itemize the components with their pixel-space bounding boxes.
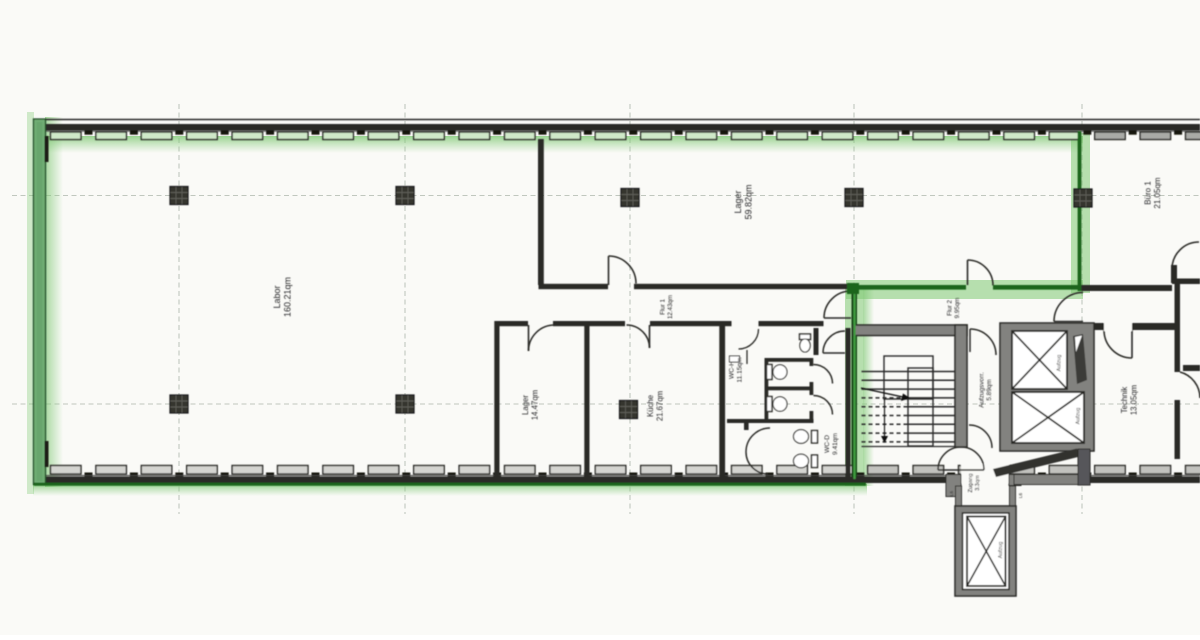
svg-text:WC-H: WC-H (728, 361, 735, 379)
svg-text:Flur 2: Flur 2 (946, 300, 953, 316)
svg-text:160.21qm: 160.21qm (283, 277, 293, 317)
svg-text:Labor: Labor (272, 285, 282, 308)
svg-text:Aufzugsvorr.: Aufzugsvorr. (978, 372, 985, 408)
svg-text:21.05qm: 21.05qm (1153, 177, 1162, 208)
svg-text:59.82qm: 59.82qm (744, 184, 754, 219)
svg-text:Aufzug: Aufzug (1057, 355, 1063, 372)
svg-text:Lager: Lager (521, 395, 530, 415)
svg-text:Küche: Küche (646, 395, 655, 417)
svg-text:9.41qm: 9.41qm (832, 432, 839, 455)
svg-text:L6: L6 (1018, 493, 1023, 499)
svg-text:Aufzug: Aufzug (998, 542, 1004, 559)
svg-text:3.3qm: 3.3qm (975, 475, 981, 491)
svg-text:Lager: Lager (733, 190, 743, 213)
svg-text:13.05qm: 13.05qm (1129, 385, 1138, 415)
svg-text:5.89qm: 5.89qm (986, 379, 993, 400)
svg-text:14.47qm: 14.47qm (530, 390, 539, 420)
svg-text:Flur 1: Flur 1 (659, 299, 666, 315)
svg-text:Büro 1: Büro 1 (1144, 181, 1153, 205)
svg-text:11.15qm: 11.15qm (736, 357, 743, 383)
svg-text:Zugang: Zugang (968, 474, 974, 493)
svg-text:WC-D: WC-D (824, 435, 831, 453)
svg-text:L6: L6 (949, 491, 954, 497)
svg-text:21.67qm: 21.67qm (655, 391, 664, 421)
svg-text:12.43qm: 12.43qm (667, 295, 674, 319)
svg-text:9.95qm: 9.95qm (954, 298, 961, 319)
svg-text:Technik: Technik (1120, 387, 1129, 414)
svg-text:Aufzug: Aufzug (1076, 408, 1082, 425)
